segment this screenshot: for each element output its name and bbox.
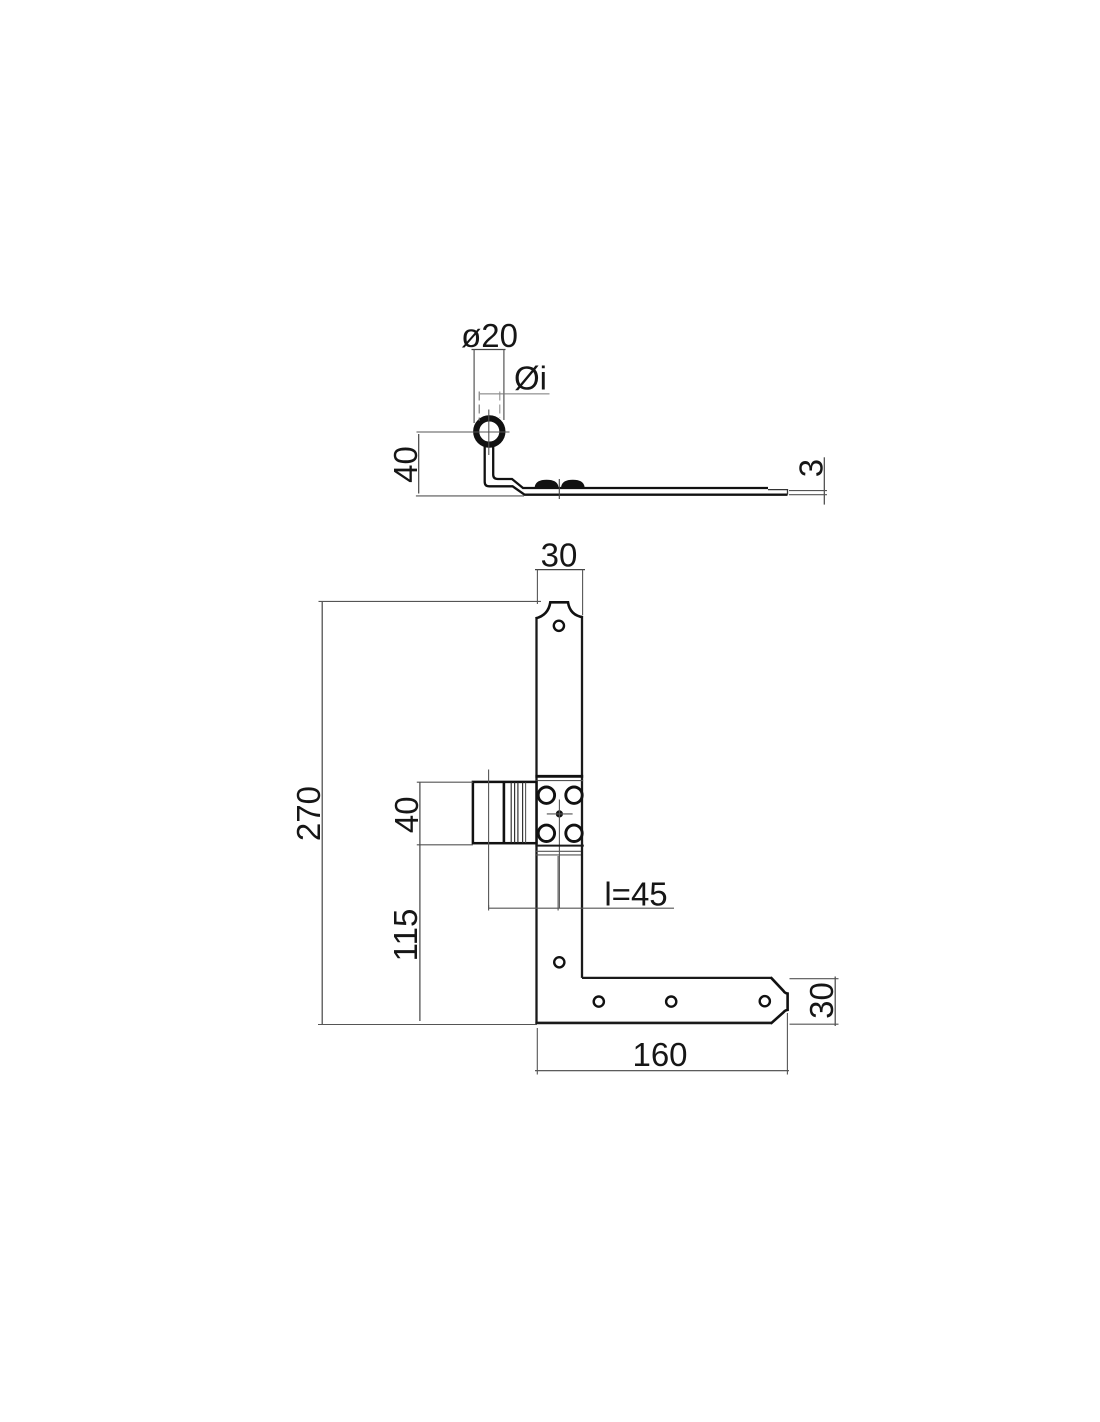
svg-text:160: 160 <box>632 1036 687 1073</box>
svg-text:270: 270 <box>290 786 327 841</box>
svg-text:ø20: ø20 <box>461 317 518 354</box>
svg-text:30: 30 <box>803 982 840 1019</box>
svg-text:Øi: Øi <box>514 360 547 397</box>
svg-text:l=45: l=45 <box>604 876 667 913</box>
svg-text:115: 115 <box>387 909 424 962</box>
svg-text:30: 30 <box>541 537 578 574</box>
